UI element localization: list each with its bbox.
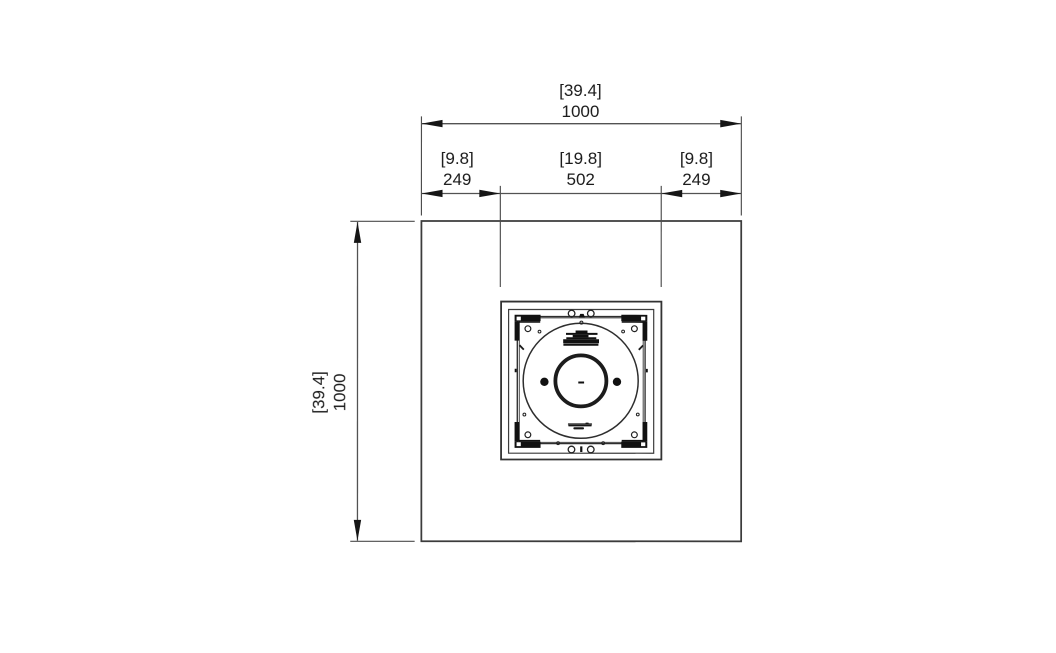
svg-text:502: 502 [567, 170, 595, 189]
svg-text:[39.4]: [39.4] [309, 371, 328, 414]
svg-text:[9.8]: [9.8] [441, 149, 474, 168]
svg-text:[19.8]: [19.8] [559, 149, 602, 168]
svg-text:1000: 1000 [330, 374, 349, 412]
svg-text:249: 249 [443, 170, 471, 189]
svg-text:[9.8]: [9.8] [680, 149, 713, 168]
svg-text:[39.4]: [39.4] [559, 81, 602, 100]
svg-text:1000: 1000 [562, 102, 600, 121]
svg-text:249: 249 [682, 170, 710, 189]
